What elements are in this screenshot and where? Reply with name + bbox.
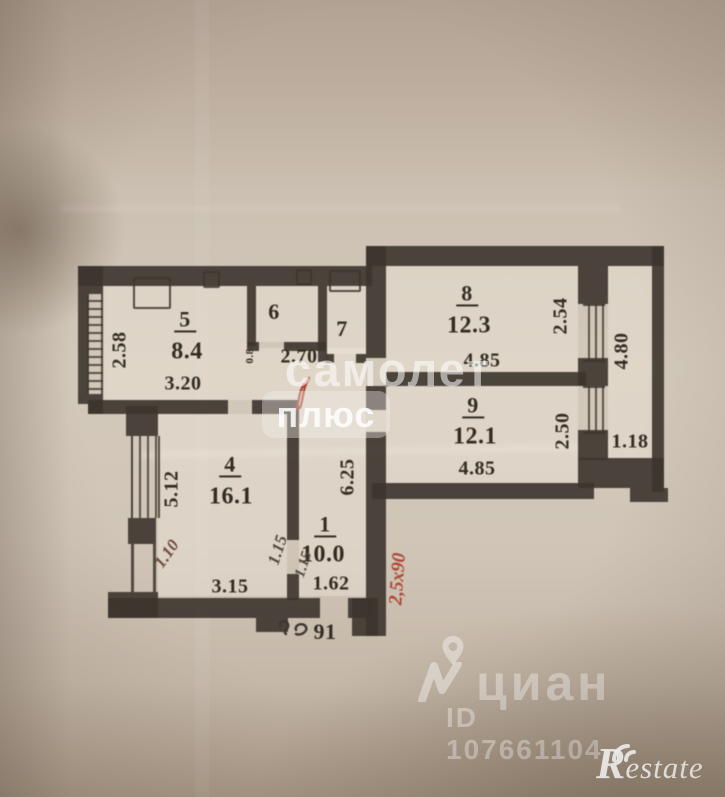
room-6 xyxy=(256,282,318,342)
room-9-area: 12.1 xyxy=(453,424,497,451)
room-5-area: 8.4 xyxy=(171,339,203,366)
room-9-height: 2.50 xyxy=(552,413,575,450)
balcony-wall xyxy=(578,458,664,488)
wall xyxy=(366,432,386,636)
watermark-restate: Restate xyxy=(596,742,704,786)
room-5-height: 2.58 xyxy=(109,332,132,369)
apartment-number: 91 xyxy=(314,619,337,645)
room-8-number: 8 xyxy=(456,281,478,306)
window-room4-low xyxy=(131,544,156,592)
wall xyxy=(578,266,608,304)
room-1-number: 1 xyxy=(314,512,336,537)
wall xyxy=(366,246,664,266)
room-9-number: 9 xyxy=(462,393,484,418)
handwritten-red-note: 2,5х90 xyxy=(385,552,411,606)
wall xyxy=(578,430,608,460)
room-4-area: 16.1 xyxy=(209,484,253,511)
vent-square xyxy=(203,271,220,288)
room-1-width: 1.62 xyxy=(313,573,350,596)
room-1-height: 6.25 xyxy=(337,459,360,496)
window-room5 xyxy=(87,294,103,394)
window-room8 xyxy=(583,304,605,362)
room-5-number: 5 xyxy=(174,307,196,332)
vent-square xyxy=(296,269,312,285)
wall xyxy=(78,266,372,286)
wall xyxy=(366,246,386,358)
cian-logo-mark xyxy=(418,662,464,702)
window-room4 xyxy=(131,436,160,518)
room-7-number: 7 xyxy=(336,316,348,342)
balcony-wall xyxy=(630,488,668,502)
room-4-width: 3.15 xyxy=(212,576,249,599)
watermark-plus-label: плюс xyxy=(277,394,376,436)
room-8-area: 12.3 xyxy=(447,313,491,340)
room-8-height: 2.54 xyxy=(550,298,573,335)
floorplan-photo: 5 8.4 3.20 2.58 6 7 2.70 0.8 8 12.3 4.85… xyxy=(0,0,725,797)
room-6-number: 6 xyxy=(268,299,280,325)
wall xyxy=(372,483,594,499)
sink-fixture xyxy=(133,277,171,309)
balcony-wall xyxy=(652,246,664,492)
restate-signal-icon xyxy=(610,738,644,762)
room-9-width: 4.85 xyxy=(459,458,496,481)
wall xyxy=(247,286,256,346)
wall xyxy=(108,598,320,618)
watermark-samolet-plus-badge: плюс xyxy=(262,391,390,438)
pen-scribble xyxy=(276,618,316,640)
room-4-number: 4 xyxy=(219,452,241,477)
wall xyxy=(88,266,103,294)
window-room9 xyxy=(583,386,605,434)
room-5-width: 3.20 xyxy=(165,373,202,396)
cian-listing-id: ID 107661104 xyxy=(446,702,603,766)
wall xyxy=(287,574,299,600)
balcony-height: 4.80 xyxy=(611,333,634,370)
wall xyxy=(128,518,156,544)
wall xyxy=(88,400,228,414)
wall xyxy=(126,406,158,436)
balcony-width: 1.18 xyxy=(612,431,649,454)
room-4-height: 5.12 xyxy=(161,471,184,508)
boiler-fixture xyxy=(329,270,361,292)
wall xyxy=(578,358,608,386)
watermark-samolet: самолет xyxy=(248,346,528,393)
